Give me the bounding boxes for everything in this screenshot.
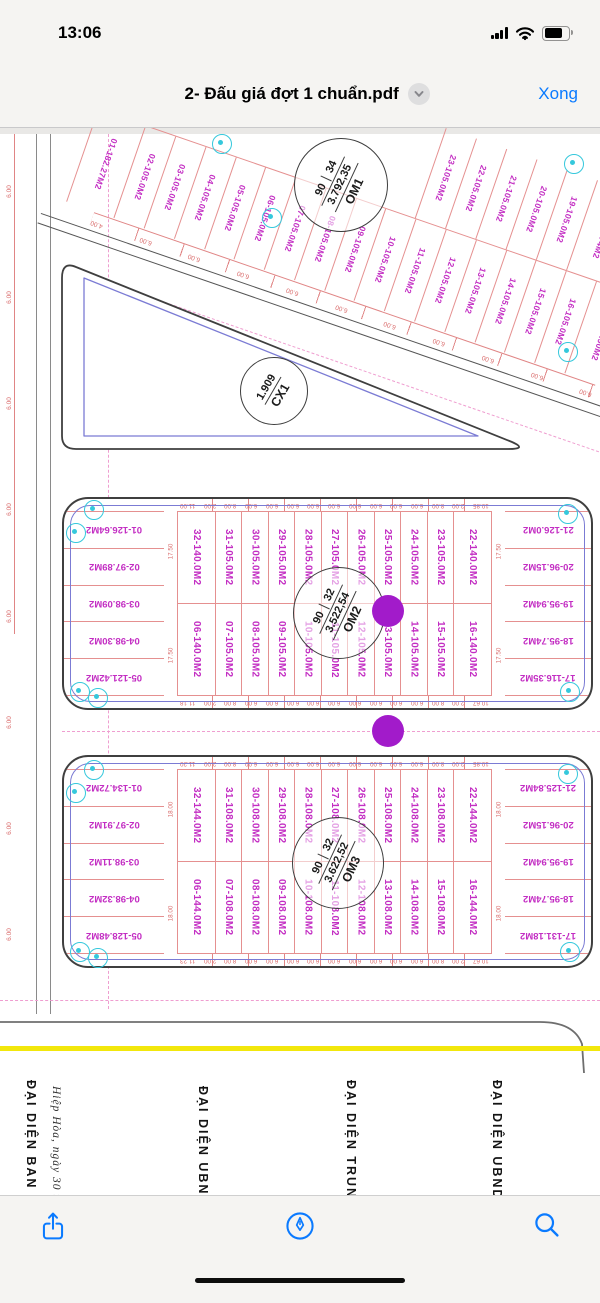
- bottom-toolbar: [0, 1195, 600, 1303]
- battery-icon: [542, 26, 570, 41]
- dimension-text: 6.00: [481, 348, 497, 364]
- plot-label: 06-140.0M2: [177, 604, 216, 695]
- dimension-text: 6.00: [390, 760, 402, 767]
- om2-bottom-dimensions: 11.182.008.006.006.006.006.006.006.006.0…: [177, 696, 492, 708]
- dimension-text: 6.00: [390, 699, 402, 706]
- om3-top-dimensions: 11.202.008.006.006.006.006.006.006.006.0…: [177, 757, 492, 769]
- dimension-text: 8.00: [224, 699, 236, 706]
- signature-title: ĐẠI DIỆN BAN QLDA: [24, 1080, 38, 1195]
- dimension-text: 6.00: [328, 760, 340, 767]
- plot-label: 22-140.0M2: [454, 512, 492, 603]
- dimension-text: 2.00: [204, 502, 216, 509]
- plot-label: 19-95.94M2: [523, 856, 574, 867]
- road-edge-line: [36, 134, 37, 1014]
- plot-label: 07-105.0M2: [216, 604, 242, 695]
- dimension-text: 6.00: [349, 957, 361, 964]
- dimension-text: 6.00: [287, 699, 299, 706]
- plot-label: 21-126.0M2: [523, 524, 574, 535]
- dimension-text: 6.00: [370, 957, 382, 964]
- plot-label: 08-108.0M2: [242, 862, 268, 953]
- dimension-text: 6.00: [530, 365, 546, 381]
- om3-bottom-dimensions: 11.232.008.006.006.006.006.006.006.006.0…: [177, 954, 492, 966]
- dimension-text: 2.00: [452, 502, 464, 509]
- dimension-text: 6.00: [411, 699, 423, 706]
- cellular-signal-icon: [491, 27, 508, 39]
- road-edge-line: [50, 134, 51, 1014]
- dimension-text: 6.00: [370, 760, 382, 767]
- dimension-text: 6.00: [307, 502, 319, 509]
- survey-marker-icon: [66, 783, 86, 803]
- dimension-text: 6.00: [432, 331, 448, 347]
- dimension-text: 6.00: [6, 929, 13, 942]
- dimension-text: 2.00: [452, 699, 464, 706]
- dimension-text: 6.00: [245, 502, 257, 509]
- dimension-text: 6.00: [349, 502, 361, 509]
- dimension-text: 17.50: [167, 543, 174, 559]
- search-button[interactable]: [532, 1210, 562, 1243]
- survey-marker-icon: [84, 760, 104, 780]
- dimension-text: 6.00: [6, 610, 13, 623]
- om3-side-dimensions: 18.0018.00: [164, 757, 177, 966]
- survey-marker-icon: [560, 682, 580, 702]
- dimension-text: 6.00: [307, 699, 319, 706]
- dimension-text: 10.85: [473, 502, 489, 509]
- survey-marker-icon: [212, 134, 232, 154]
- survey-marker-icon: [558, 504, 578, 524]
- chevron-down-icon[interactable]: [408, 83, 430, 105]
- dimension-text: 18.00: [167, 801, 174, 817]
- signature-title: ĐẠI DIỆN TRUNG TÂ: [344, 1080, 358, 1195]
- dimension-text: 6.00: [334, 297, 350, 313]
- om2-side-dimensions: 17.5017.50: [164, 499, 177, 708]
- dimension-text: 6.00: [307, 957, 319, 964]
- om2-top-dimensions: 11.002.008.006.006.006.006.006.006.006.0…: [177, 499, 492, 511]
- road-centerline: [0, 1000, 600, 1001]
- search-icon: [532, 1210, 562, 1240]
- dimension-text: 6.00: [328, 699, 340, 706]
- dimension-text: 2.00: [204, 699, 216, 706]
- plot-label: 21-125.84M2: [520, 782, 576, 793]
- survey-marker-icon: [564, 154, 584, 174]
- dimension-text: 2.00: [204, 957, 216, 964]
- plot-label: 23-105.0M2: [428, 512, 454, 603]
- plot-label: 32-140.0M2: [177, 512, 216, 603]
- plot-label: 04-98.32M2: [89, 893, 140, 904]
- dimension-text: 6.00: [287, 760, 299, 767]
- plot-label: 08-105.0M2: [242, 604, 268, 695]
- dimension-text: 6.00: [266, 957, 278, 964]
- markup-pen-icon: [284, 1210, 316, 1242]
- plot-label: 16-140.0M2: [454, 604, 492, 695]
- dimension-text: 4.00: [90, 213, 106, 229]
- plot-label: 03-98.09M2: [89, 598, 140, 609]
- plot-label: 14-108.0M2: [401, 862, 427, 953]
- dimension-text: 18.00: [495, 906, 502, 922]
- om1-label-circle: 90 34 3.792,35 OM1: [294, 138, 388, 232]
- dimension-text: 8.00: [432, 957, 444, 964]
- dimension-text: 8.00: [224, 760, 236, 767]
- om3-label-circle: 90 32 3.622,52 OM3: [292, 817, 384, 909]
- dimension-text: 2.00: [204, 760, 216, 767]
- dimension-text: 18.00: [495, 801, 502, 817]
- plot-label: 20-96.15M2: [523, 561, 574, 572]
- dimension-text: 6.00: [266, 760, 278, 767]
- dimension-text: 6.00: [139, 230, 155, 246]
- annotation-dot: [372, 595, 404, 627]
- dimension-text: 6.00: [287, 957, 299, 964]
- survey-marker-icon: [560, 942, 580, 962]
- survey-marker-icon: [70, 682, 90, 702]
- plot-label: 20-96.15M2: [523, 819, 574, 830]
- dimension-text: 6.00: [6, 822, 13, 835]
- survey-marker-icon: [84, 500, 104, 520]
- signature-date-note: Hiệp Hòa, ngày 30 th: [50, 1086, 62, 1195]
- plot-label: 09-105.0M2: [269, 604, 295, 695]
- dimension-text: 11.00: [180, 502, 195, 509]
- wifi-icon: [515, 26, 535, 41]
- plot-label: 29-108.0M2: [269, 770, 295, 861]
- plot-label: 30-108.0M2: [242, 770, 268, 861]
- share-button[interactable]: [38, 1210, 68, 1247]
- plot-label: 05-121.42M2: [86, 672, 142, 683]
- home-indicator[interactable]: [195, 1278, 405, 1283]
- survey-marker-icon: [88, 948, 108, 968]
- plot-label: 23-108.0M2: [428, 770, 454, 861]
- survey-marker-icon: [88, 688, 108, 708]
- plot-label: 02-97.91M2: [89, 819, 140, 830]
- om3-right-column: 21-125.84M220-96.15M219-95.94M218-95.74M…: [505, 757, 591, 966]
- dimension-text: 6.00: [328, 502, 340, 509]
- status-bar: 13:06: [0, 0, 600, 60]
- plot-label: 05-128.48M2: [86, 930, 142, 941]
- dimension-text: 6.00: [390, 502, 402, 509]
- highlight-line: [0, 1046, 600, 1051]
- share-icon: [38, 1210, 68, 1244]
- dimension-text: 6.00: [349, 699, 361, 706]
- dimension-text: 8.00: [432, 760, 444, 767]
- dimension-text: 8.00: [224, 957, 236, 964]
- om3-side-dimensions: 18.0018.00: [492, 757, 505, 966]
- markup-button[interactable]: [284, 1210, 316, 1245]
- dimension-text: 11.23: [180, 957, 195, 964]
- dimension-text: 6.00: [236, 264, 252, 280]
- survey-marker-icon: [262, 208, 282, 228]
- plot-label: 07-108.0M2: [216, 862, 242, 953]
- dimension-text: 6.00: [245, 699, 257, 706]
- plot-label: 06-144.0M2: [177, 862, 216, 953]
- dimension-text: 6.00: [287, 502, 299, 509]
- dimension-text: 8.00: [224, 502, 236, 509]
- dimension-text: 6.00: [328, 957, 340, 964]
- plot-label: 30-105.0M2: [242, 512, 268, 603]
- plot-label: 15-108.0M2: [428, 862, 454, 953]
- dimension-text: 6.00: [245, 760, 257, 767]
- dimension-text: 18.00: [167, 906, 174, 922]
- dimension-text: 6.00: [579, 382, 595, 398]
- plot-label: 24-108.0M2: [401, 770, 427, 861]
- dimension-text: 6.00: [6, 397, 13, 410]
- dimension-text: 6.00: [370, 502, 382, 509]
- om2-side-dimensions: 17.5017.50: [492, 499, 505, 708]
- dimension-text: 6.00: [6, 185, 13, 198]
- plot-label: 15-105.0M2: [428, 604, 454, 695]
- dimension-text: 6.00: [6, 291, 13, 304]
- dimension-text: 6.00: [370, 699, 382, 706]
- dimension-text: 10.67: [473, 699, 489, 706]
- plot-label: 22-144.0M2: [454, 770, 492, 861]
- plot-label: 19-95.94M2: [523, 598, 574, 609]
- plot-label: 29-105.0M2: [269, 512, 295, 603]
- dimension-text: 10.67: [473, 957, 489, 964]
- dimension-text: 17.50: [495, 543, 502, 559]
- survey-marker-icon: [70, 942, 90, 962]
- plot-label: 01-126.64M2: [86, 524, 142, 535]
- plot-label: 31-105.0M2: [216, 512, 242, 603]
- om2-right-column: 21-126.0M220-96.15M219-95.94M218-95.74M2…: [505, 499, 591, 708]
- dimension-text: 8.00: [432, 699, 444, 706]
- pdf-nav-bar: 2- Đấu giá đợt 1 chuẩn.pdf Xong: [0, 60, 600, 128]
- plot-label: 31-108.0M2: [216, 770, 242, 861]
- signature-title: ĐẠI DIỆN UBND X: [196, 1086, 210, 1195]
- dimension-text: 6.00: [187, 247, 203, 263]
- dimension-text: 11.20: [180, 760, 195, 767]
- dimension-text: 6.00: [390, 957, 402, 964]
- road-dimensions: 6.006.006.006.006.006.006.006.00: [2, 138, 16, 988]
- dimension-text: 17.50: [167, 648, 174, 664]
- plot-label: 17-116.35M2: [520, 672, 575, 683]
- plot-label: 24-105.0M2: [401, 512, 427, 603]
- dimension-text: 17.50: [495, 648, 502, 664]
- dimension-text: 6.00: [383, 314, 399, 330]
- plot-label: 14-105.0M2: [401, 604, 427, 695]
- dimension-text: 6.00: [266, 699, 278, 706]
- done-button[interactable]: Xong: [534, 84, 582, 104]
- signature-title: ĐẠI DIỆN UBND HUY: [490, 1080, 504, 1195]
- dimension-text: 6.00: [266, 502, 278, 509]
- plot-label: 16-144.0M2: [454, 862, 492, 953]
- dimension-text: 6.00: [307, 760, 319, 767]
- plot-label: 32-144.0M2: [177, 770, 216, 861]
- pdf-viewport[interactable]: 6.006.006.006.006.006.006.006.00 23-105.…: [0, 128, 600, 1195]
- road-centerline: [62, 731, 600, 732]
- plot-label: 18-95.74M2: [523, 893, 574, 904]
- survey-marker-icon: [558, 764, 578, 784]
- dimension-text: 11.18: [180, 699, 195, 706]
- dimension-text: 10.85: [473, 760, 489, 767]
- plot-label: 18-95.74M2: [523, 635, 574, 646]
- plot-label: 17-131.18M2: [520, 930, 576, 941]
- cx1-label-circle: 1.909 CX1: [240, 357, 308, 425]
- iphone-screen: 13:06 2- Đấu giá đợt 1 chuẩn.pdf Xong: [0, 0, 600, 1303]
- dimension-text: 2.00: [452, 760, 464, 767]
- dimension-text: 6.00: [411, 502, 423, 509]
- dimension-text: 6.00: [285, 281, 301, 297]
- plot-label: 03-98.11M2: [89, 856, 139, 867]
- plot-label: 01-134.72M2: [86, 782, 142, 793]
- survey-marker-icon: [558, 342, 578, 362]
- annotation-dot: [372, 715, 404, 747]
- plot-label: 09-108.0M2: [269, 862, 295, 953]
- dimension-text: 2.00: [452, 957, 464, 964]
- dimension-text: 6.00: [411, 957, 423, 964]
- dimension-text: 6.00: [411, 760, 423, 767]
- dimension-text: 6.00: [6, 504, 13, 517]
- dimension-text: 6.00: [6, 716, 13, 729]
- dimension-text: 8.00: [432, 502, 444, 509]
- plot-label: 02-97.89M2: [89, 561, 140, 572]
- plot-label: 04-98.30M2: [89, 635, 140, 646]
- dimension-text: 6.00: [349, 760, 361, 767]
- survey-marker-icon: [66, 523, 86, 543]
- status-time: 13:06: [58, 23, 101, 43]
- document-title: 2- Đấu giá đợt 1 chuẩn.pdf: [185, 84, 399, 104]
- dimension-text: 6.00: [245, 957, 257, 964]
